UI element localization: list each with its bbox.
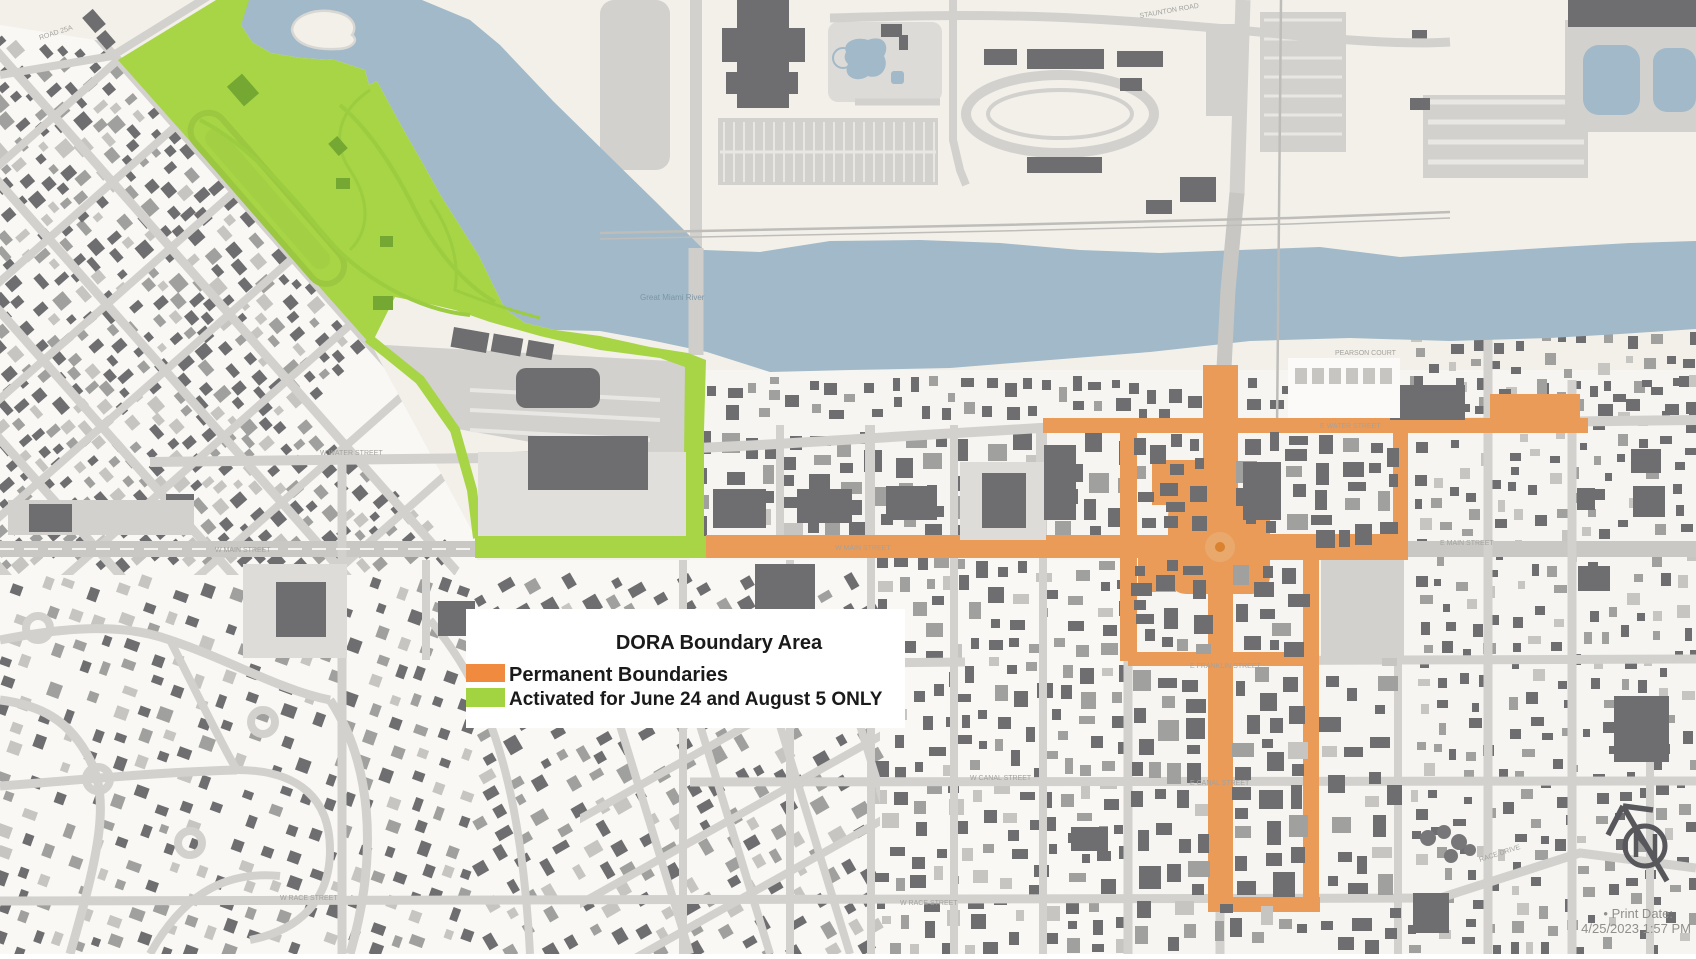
- svg-text:DORA Boundary Area: DORA Boundary Area: [616, 632, 823, 654]
- svg-text:E WATER STREET: E WATER STREET: [1320, 423, 1381, 430]
- svg-text:E CANAL STREET: E CANAL STREET: [1190, 780, 1250, 787]
- svg-text:W MAIN STREET: W MAIN STREET: [215, 547, 271, 554]
- svg-text:E FRANKLIN STREET: E FRANKLIN STREET: [1190, 663, 1262, 670]
- svg-text:Activated for June 24 and Augu: Activated for June 24 and August 5 ONLY: [509, 689, 883, 710]
- svg-text:4/25/2023 1:57 PM: 4/25/2023 1:57 PM: [1581, 921, 1691, 936]
- svg-text:W CANAL STREET: W CANAL STREET: [970, 775, 1032, 782]
- svg-text:• Print Date:: • Print Date:: [1603, 906, 1673, 921]
- svg-text:W MAIN STREET: W MAIN STREET: [835, 545, 891, 552]
- svg-text:W RACE STREET: W RACE STREET: [280, 895, 338, 902]
- svg-text:W RACE STREET: W RACE STREET: [900, 900, 958, 907]
- svg-text:PEARSON COURT: PEARSON COURT: [1335, 350, 1397, 357]
- svg-text:Permanent Boundaries: Permanent Boundaries: [509, 664, 728, 686]
- svg-text:W WATER STREET: W WATER STREET: [320, 450, 383, 457]
- svg-text:E MAIN STREET: E MAIN STREET: [1440, 540, 1494, 547]
- svg-text:Great Miami River: Great Miami River: [640, 293, 705, 302]
